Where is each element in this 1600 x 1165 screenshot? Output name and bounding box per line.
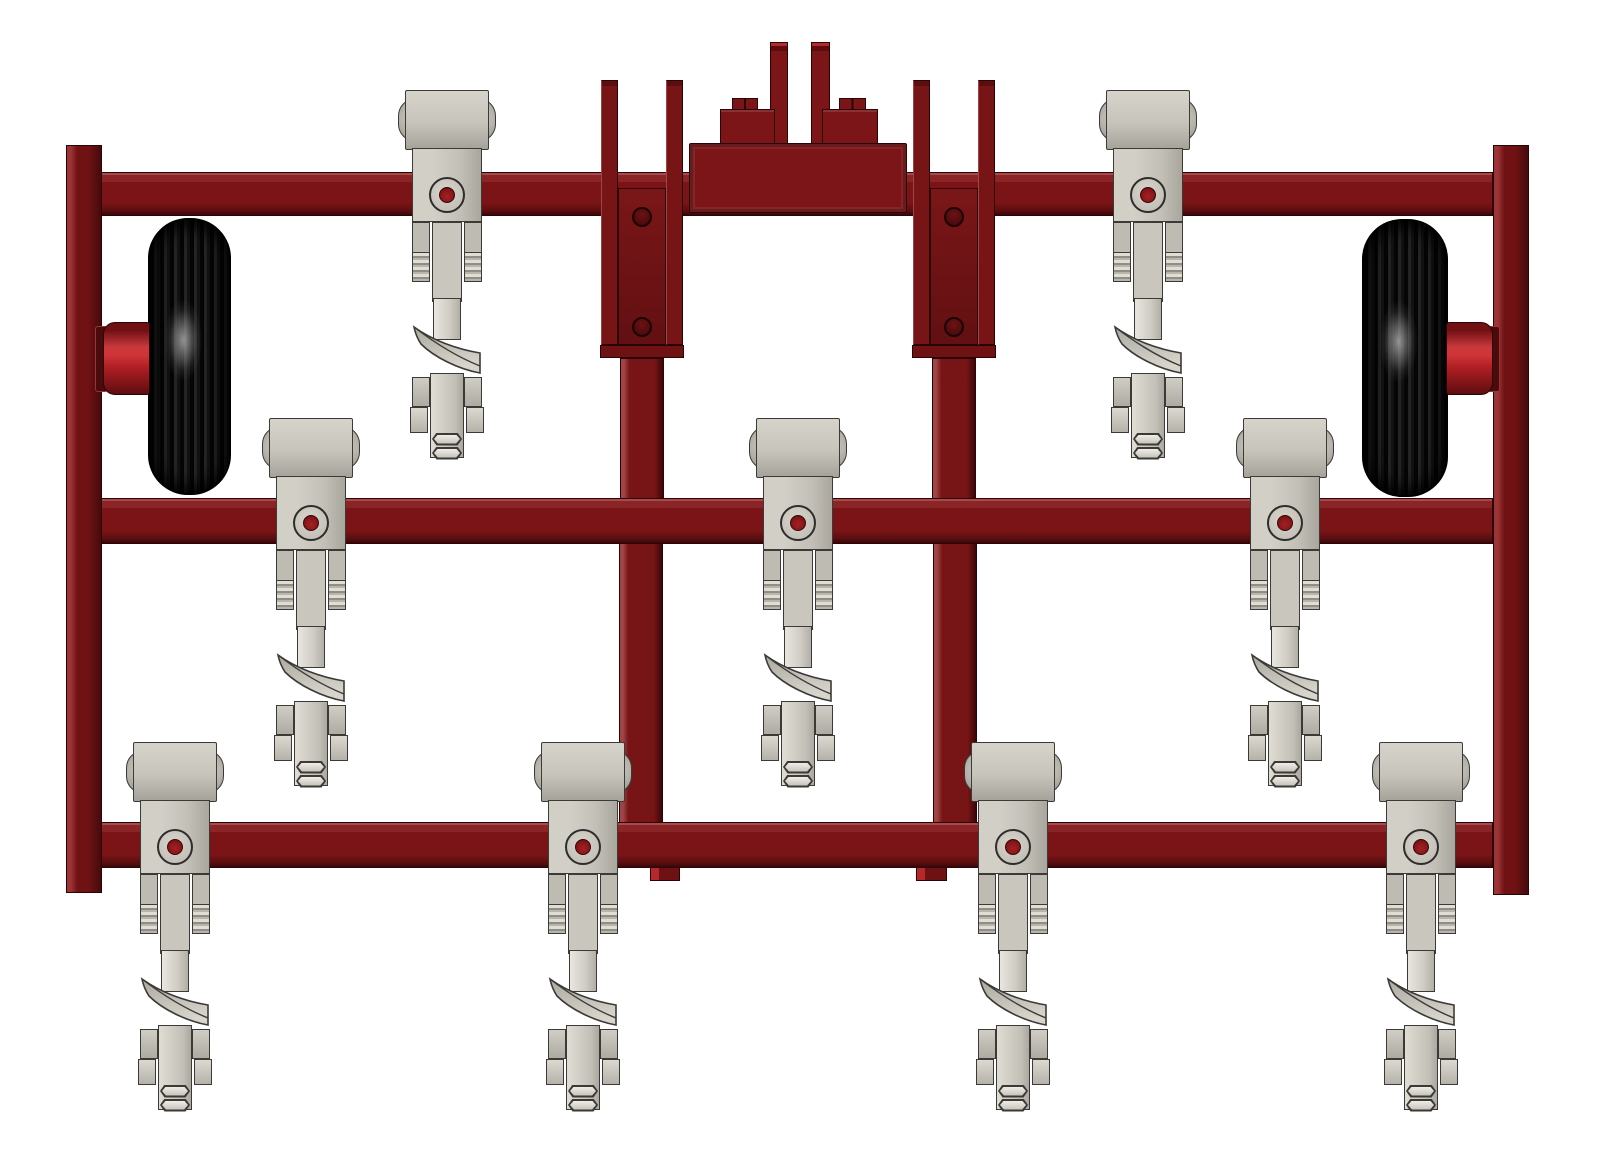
shank-middle-clamp-flange-lower: [1304, 735, 1322, 761]
shank-middle-clamp-flange: [815, 705, 833, 735]
shank-bottom-clamp-flange-lower: [194, 1059, 212, 1085]
shank-bottom-hex-nut-1: [998, 1099, 1028, 1112]
under-bar-tab-right: [916, 867, 947, 881]
shank-middle-hex-nut-0: [1270, 761, 1300, 774]
shank-top-sweep-blade: [412, 325, 482, 375]
shank-middle-clamp-flange-lower: [817, 735, 835, 761]
shank-top-clamp-flange-lower: [466, 407, 484, 433]
shank-bottom-pivot-bolt: [575, 839, 591, 855]
shank-top-pivot-bolt: [1140, 187, 1156, 203]
shank-top-roller-block: [1106, 90, 1190, 150]
shank-bottom-spring-ridges: [1030, 904, 1048, 934]
shank-bottom-clamp-flange: [600, 1029, 618, 1059]
shank-bottom-hex-nut-face: [162, 1101, 188, 1110]
shank-top-clamp-flange: [412, 377, 430, 407]
shank-middle-hex-nut-face: [1272, 777, 1298, 786]
upper-clamp-lip-left: [600, 345, 684, 358]
shank-middle-clamp-flange: [1302, 705, 1320, 735]
shank-middle-sweep-blade: [763, 653, 833, 703]
shank-bottom-hex-nut-1: [568, 1099, 598, 1112]
shank-bottom-pivot-bolt: [167, 839, 183, 855]
shank-middle-clamp-flange-lower: [330, 735, 348, 761]
under-bar-tab-left: [650, 867, 680, 881]
shank-middle-hex-nut-0: [783, 761, 813, 774]
shank-bottom-roller-block: [133, 742, 217, 802]
shank-bottom-roller-block: [971, 742, 1055, 802]
shank-bottom-roller-block: [541, 742, 625, 802]
upper-bracket-strip-left: [666, 80, 683, 345]
clamp-bolt-hole-right-1: [944, 317, 964, 337]
shank-bottom-center-strip: [998, 874, 1028, 954]
hitch-step-1: [822, 109, 878, 145]
shank-bottom-spring-ridges: [192, 904, 210, 934]
shank-top-center-strip: [1133, 222, 1163, 302]
shank-top-clamp-flange-lower: [1167, 407, 1185, 433]
shank-top-hex-nut-face: [1135, 435, 1161, 444]
shank-bottom-clamp-flange: [192, 1029, 210, 1059]
shank-middle-clamp-flange-lower: [274, 735, 292, 761]
upper-bracket-strip-right: [978, 80, 995, 345]
shank-bottom-hex-nut-face: [570, 1087, 596, 1096]
shank-bottom-clamp-flange-lower: [976, 1059, 994, 1085]
shank-bottom-clamp-flange: [978, 1029, 996, 1059]
clamp-bolt-hole-left-1: [632, 317, 652, 337]
cad-viewport[interactable]: [0, 0, 1600, 1165]
shank-bottom-clamp-flange: [140, 1029, 158, 1059]
shank-bottom-spring-ridges: [1386, 904, 1404, 934]
shank-top-clamp-flange-lower: [410, 407, 428, 433]
gauge-wheel-tire-right: [1362, 219, 1448, 497]
shank-bottom-clamp-flange: [548, 1029, 566, 1059]
shank-bottom-clamp-flange-lower: [138, 1059, 156, 1085]
shank-middle-roller-block: [269, 418, 353, 478]
shank-middle-center-strip: [1270, 550, 1300, 630]
shank-bottom-spring-ridges: [548, 904, 566, 934]
shank-middle-spring-ridges: [1302, 580, 1320, 610]
shank-top-hex-nut-1: [432, 447, 462, 460]
toolbar-bottom: [101, 822, 1493, 868]
shank-middle-spring-ridges: [328, 580, 346, 610]
shank-bottom-hex-nut-0: [568, 1085, 598, 1098]
shank-bottom-hex-nut-0: [998, 1085, 1028, 1098]
lower-post-left: [619, 540, 663, 840]
shank-bottom-clamp-flange: [1030, 1029, 1048, 1059]
shank-bottom-hex-nut-face: [1000, 1087, 1026, 1096]
hitch-step-0: [720, 109, 775, 145]
shank-middle-hex-nut-face: [298, 777, 324, 786]
wheel-hub-right: [1446, 322, 1493, 395]
shank-middle-hex-nut-0: [296, 761, 326, 774]
shank-middle-clamp-flange: [276, 705, 294, 735]
shank-bottom-hex-nut-0: [1406, 1085, 1436, 1098]
shank-bottom-hex-nut-face: [570, 1101, 596, 1110]
shank-middle-clamp-flange: [1250, 705, 1268, 735]
shank-bottom-spring-ridges: [1438, 904, 1456, 934]
shank-middle-hex-nut-1: [296, 775, 326, 788]
shank-bottom-spring-ridges: [140, 904, 158, 934]
hitch-tower-block: [689, 143, 907, 213]
shank-bottom-hex-nut-face: [1000, 1101, 1026, 1110]
shank-bottom-center-strip: [160, 874, 190, 954]
frame-rail-right: [1493, 145, 1529, 895]
shank-bottom-clamp-flange-lower: [602, 1059, 620, 1085]
shank-top-hex-nut-face: [434, 435, 460, 444]
shank-middle-sweep-blade: [276, 653, 346, 703]
shank-bottom-pivot-bolt: [1005, 839, 1021, 855]
shank-bottom-hex-nut-1: [1406, 1099, 1436, 1112]
shank-top-roller-block: [405, 90, 489, 150]
shank-top-spring-ridges: [1165, 252, 1183, 282]
shank-bottom-sweep-blade: [978, 977, 1048, 1027]
shank-middle-clamp-flange-lower: [761, 735, 779, 761]
shank-bottom-pivot-bolt: [1413, 839, 1429, 855]
shank-middle-hex-nut-face: [785, 763, 811, 772]
shank-bottom-roller-block: [1379, 742, 1463, 802]
shank-middle-center-strip: [296, 550, 326, 630]
shank-bottom-hex-nut-face: [1408, 1101, 1434, 1110]
shank-top-hex-nut-face: [434, 449, 460, 458]
shank-bottom-sweep-blade: [1386, 977, 1456, 1027]
shank-top-spring-ridges: [412, 252, 430, 282]
shank-middle-spring-ridges: [763, 580, 781, 610]
shank-top-clamp-flange: [1113, 377, 1131, 407]
upper-bracket-post-right: [932, 358, 976, 500]
shank-middle-sweep-blade: [1250, 653, 1320, 703]
shank-middle-hex-nut-1: [783, 775, 813, 788]
shank-top-clamp-flange-lower: [1111, 407, 1129, 433]
shank-middle-hex-nut-face: [785, 777, 811, 786]
shank-middle-clamp-flange: [763, 705, 781, 735]
upper-bracket-strip-left: [601, 80, 618, 345]
shank-bottom-center-strip: [1406, 874, 1436, 954]
upper-bracket-post-left: [620, 358, 664, 500]
shank-top-clamp-flange: [464, 377, 482, 407]
shank-top-spring-ridges: [1113, 252, 1131, 282]
shank-middle-roller-block: [756, 418, 840, 478]
shank-middle-center-strip: [783, 550, 813, 630]
shank-middle-spring-ridges: [276, 580, 294, 610]
gauge-wheel-tire-left: [148, 218, 231, 495]
shank-middle-roller-block: [1243, 418, 1327, 478]
shank-top-hex-nut-1: [1133, 447, 1163, 460]
shank-top-sweep-blade: [1113, 325, 1183, 375]
shank-bottom-spring-ridges: [978, 904, 996, 934]
shank-bottom-clamp-flange-lower: [1440, 1059, 1458, 1085]
clamp-bolt-hole-left-0: [632, 207, 652, 227]
shank-middle-pivot-bolt: [790, 515, 806, 531]
shank-middle-hex-nut-1: [1270, 775, 1300, 788]
shank-bottom-hex-nut-1: [160, 1099, 190, 1112]
shank-top-clamp-flange: [1165, 377, 1183, 407]
shank-bottom-spring-ridges: [600, 904, 618, 934]
clamp-bolt-hole-right-0: [944, 207, 964, 227]
shank-bottom-center-strip: [568, 874, 598, 954]
shank-middle-hex-nut-face: [298, 763, 324, 772]
shank-top-hex-nut-0: [432, 433, 462, 446]
upper-bracket-strip-right: [913, 80, 930, 345]
shank-bottom-clamp-flange: [1438, 1029, 1456, 1059]
shank-bottom-clamp-flange-lower: [1032, 1059, 1050, 1085]
shank-middle-spring-ridges: [1250, 580, 1268, 610]
wheel-hub-left: [103, 322, 150, 395]
shank-bottom-sweep-blade: [548, 977, 618, 1027]
shank-middle-pivot-bolt: [1277, 515, 1293, 531]
frame-rail-left: [66, 145, 102, 893]
shank-bottom-hex-nut-0: [160, 1085, 190, 1098]
shank-bottom-hex-nut-face: [162, 1087, 188, 1096]
shank-bottom-clamp-flange-lower: [1384, 1059, 1402, 1085]
shank-bottom-hex-nut-face: [1408, 1087, 1434, 1096]
shank-top-spring-ridges: [464, 252, 482, 282]
shank-top-hex-nut-0: [1133, 433, 1163, 446]
shank-top-hex-nut-face: [1135, 449, 1161, 458]
shank-bottom-clamp-flange: [1386, 1029, 1404, 1059]
shank-middle-clamp-flange-lower: [1248, 735, 1266, 761]
shank-middle-hex-nut-face: [1272, 763, 1298, 772]
shank-middle-clamp-flange: [328, 705, 346, 735]
shank-top-pivot-bolt: [439, 187, 455, 203]
upper-clamp-lip-right: [912, 345, 996, 358]
shank-bottom-clamp-flange-lower: [546, 1059, 564, 1085]
shank-middle-pivot-bolt: [303, 515, 319, 531]
shank-bottom-sweep-blade: [140, 977, 210, 1027]
shank-top-center-strip: [432, 222, 462, 302]
shank-middle-spring-ridges: [815, 580, 833, 610]
